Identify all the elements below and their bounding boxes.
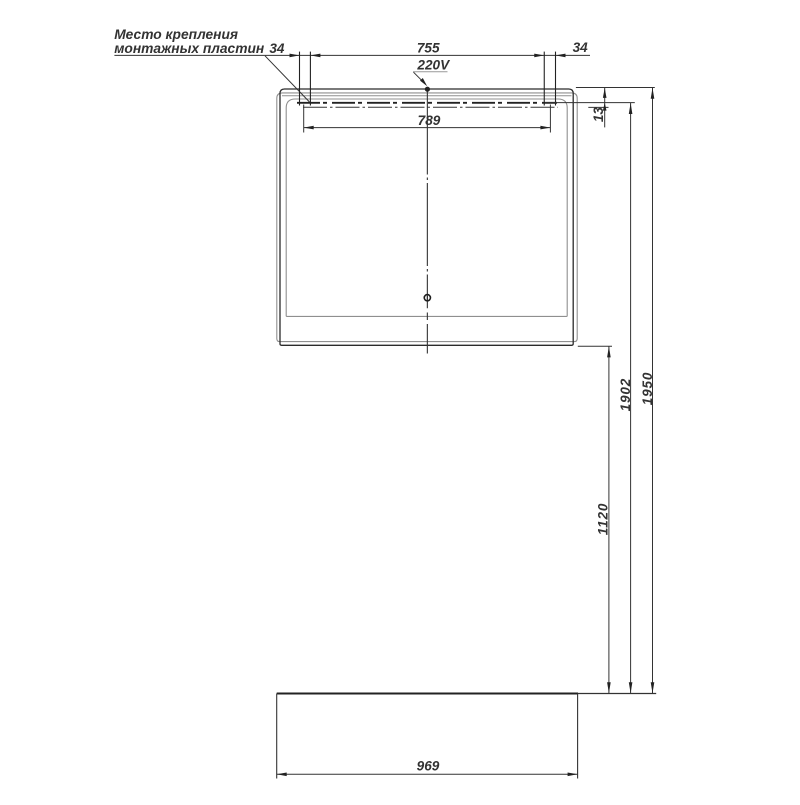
svg-text:755: 755 bbox=[417, 40, 440, 55]
svg-text:монтажных пластин: монтажных пластин bbox=[114, 41, 265, 56]
svg-text:34: 34 bbox=[269, 41, 285, 56]
svg-text:969: 969 bbox=[417, 758, 440, 773]
svg-text:34: 34 bbox=[573, 40, 589, 55]
svg-text:1950: 1950 bbox=[640, 372, 655, 405]
svg-text:1120: 1120 bbox=[595, 503, 610, 535]
svg-text:1902: 1902 bbox=[618, 378, 633, 411]
svg-text:13: 13 bbox=[591, 107, 606, 123]
svg-text:789: 789 bbox=[418, 113, 441, 128]
svg-text:220V: 220V bbox=[416, 58, 451, 73]
